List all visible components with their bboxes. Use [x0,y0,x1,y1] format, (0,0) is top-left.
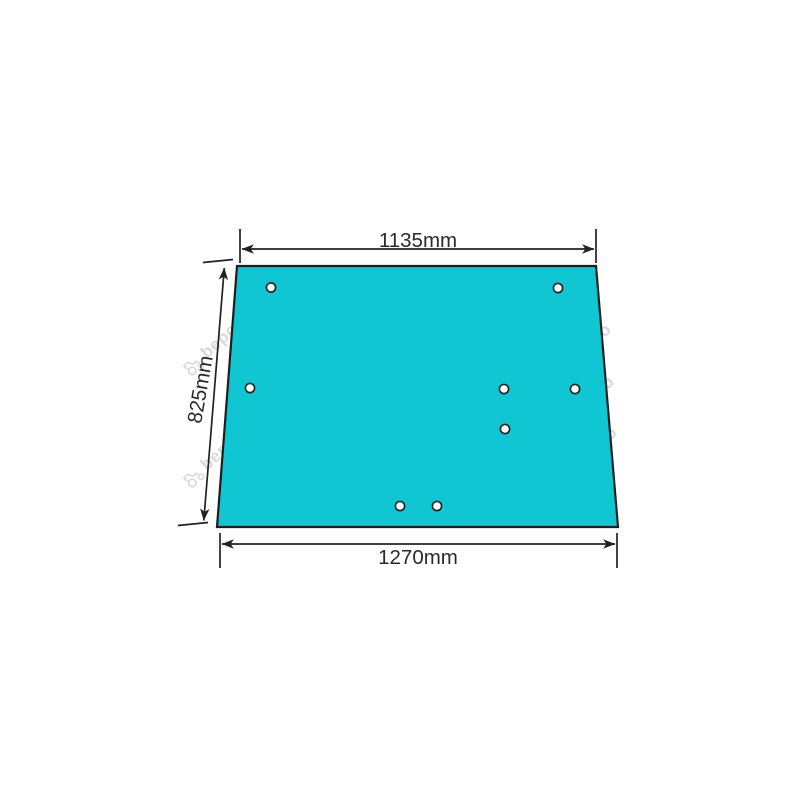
dimension-label-bottom-width: 1270mm [378,546,458,569]
mounting-hole [266,283,275,292]
mounting-hole [432,501,441,510]
extension-line [203,260,233,263]
mounting-hole [500,424,509,433]
mounting-hole [245,383,254,392]
dimension-top-width: 1135mm [240,229,596,263]
mounting-hole [395,501,404,510]
dimension-bottom-width: 1270mm [220,533,617,569]
extension-line [178,523,208,526]
dimension-label-top-width: 1135mm [379,229,457,252]
glass-panel-shape [217,266,618,527]
mounting-hole [570,384,579,393]
mounting-hole [553,283,562,292]
glass-panel [217,266,618,527]
glass-diagram-svg: 1135mm 1270mm 825mm [0,0,800,800]
diagram-canvas: bepco bepco bepco [0,0,800,800]
mounting-hole [499,384,508,393]
